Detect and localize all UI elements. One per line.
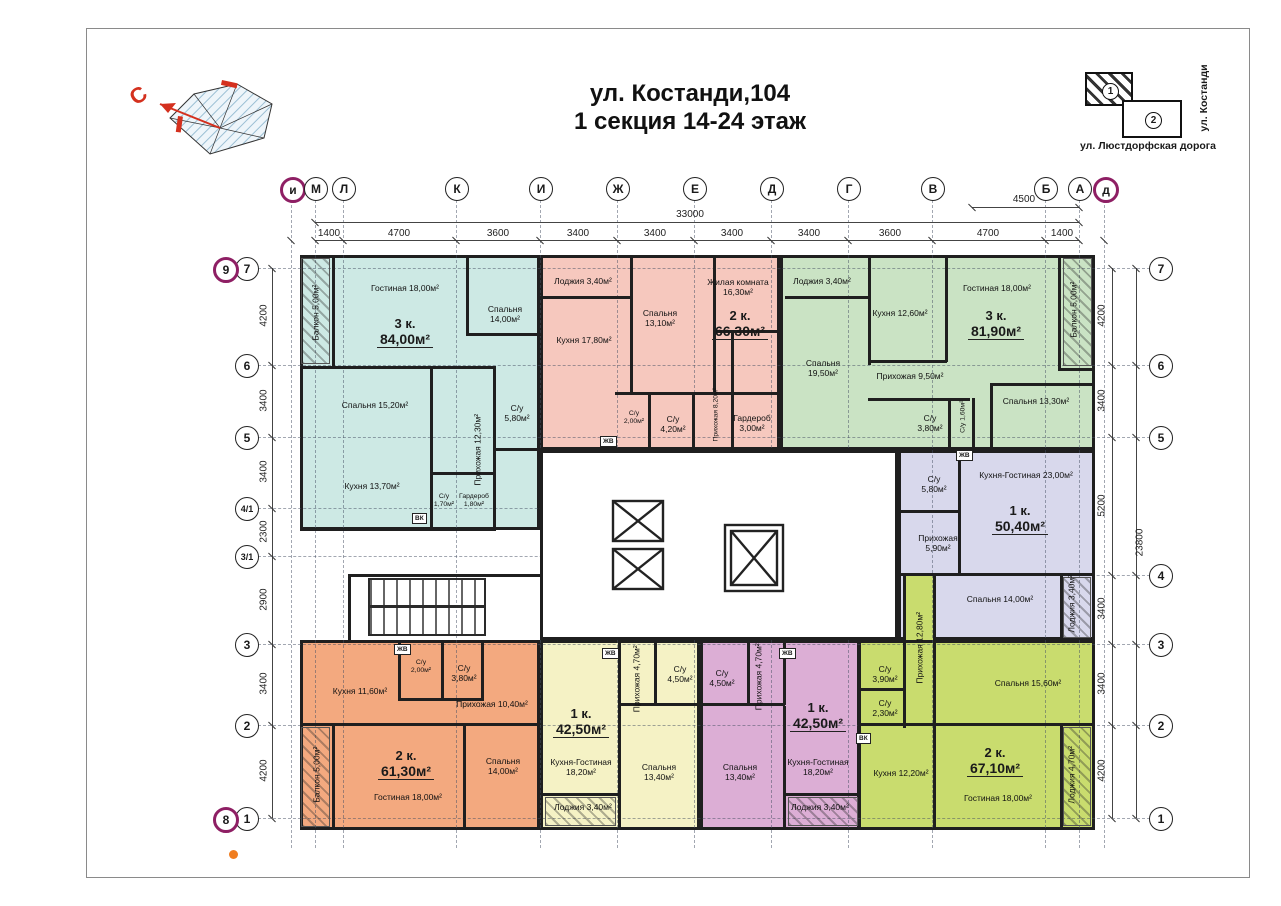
room-label: Спальня 15,20м² [338, 401, 412, 411]
staircase-landing [368, 605, 486, 608]
floor-plan-sheet: ул. Костанди,104 1 секция 14-24 этаж С 1… [0, 0, 1281, 906]
shaft-label: ЖВ [600, 436, 617, 447]
shaft-label: ЖВ [394, 644, 411, 655]
axis-label-и: и [280, 177, 306, 203]
shaft-label: ЖВ [956, 450, 973, 461]
room-label: Гардероб 3,00м² [724, 414, 780, 433]
room-label: С/у 1,60м² [959, 380, 967, 454]
wall [1060, 725, 1063, 830]
apartment-type-label: 3 к. [941, 308, 1051, 323]
room-label: Балкон 5,00м² [312, 738, 322, 812]
apartment-area-label: 81,90м² [968, 323, 1024, 340]
room-label: Лоджия 3,40м² [783, 803, 857, 813]
axis-label-3/1: 3/1 [235, 545, 259, 569]
apartment-area-label: 42,50м² [790, 715, 846, 732]
room-label: Кухня-Гостиная 18,20м² [775, 758, 861, 777]
dimension-label: 4700 [377, 228, 421, 239]
wall [493, 450, 496, 530]
room-label: Прихожая 5,90м² [908, 534, 968, 553]
axis-label-К: К [445, 177, 469, 201]
wall [933, 640, 936, 830]
room-label: Гостиная 18,00м² [960, 284, 1034, 294]
wall [466, 255, 469, 335]
gridline-horizontal [258, 508, 588, 509]
room-label: Кухня-Гостиная 18,20м² [538, 758, 624, 777]
dimension-label: 3400 [710, 228, 754, 239]
axis-label-2: 2 [1149, 714, 1173, 738]
room-label: Жилая комната 16,30м² [694, 278, 782, 297]
room-label: Спальня 13,40м² [709, 763, 771, 782]
apartment-type-label: 2 к. [351, 748, 461, 763]
apartment-area-label: 66,30м² [712, 323, 768, 340]
wall [1058, 368, 1095, 371]
wall [858, 688, 905, 691]
dimension-line [972, 207, 1079, 208]
dimension-label: 3400 [1097, 664, 1108, 704]
apartment-type-label: 3 к. [350, 316, 460, 331]
wall [543, 793, 620, 796]
room-label: Лоджия 3,40м² [546, 277, 620, 287]
shaft-label: ВК [856, 733, 871, 744]
room-label: Спальня 19,50м² [794, 359, 852, 378]
dimension-label: 4700 [966, 228, 1010, 239]
wall [990, 383, 1095, 386]
apartment-type-label: 1 к. [763, 700, 873, 715]
elevator-shafts-icon [543, 453, 895, 637]
dimension-label: 3400 [259, 664, 270, 704]
axis-label-В: В [921, 177, 945, 201]
apartment-area-label: 61,30м² [378, 763, 434, 780]
apartment-type-label: 1 к. [526, 706, 636, 721]
dimension-label: 1400 [1040, 228, 1084, 239]
room-label: Кухня 12,60м² [871, 309, 929, 319]
shaft-label: ЖВ [779, 648, 796, 659]
wall [868, 398, 970, 401]
apartment-area-label: 67,10м² [967, 760, 1023, 777]
room-label: С/у 3,90м² [867, 665, 903, 684]
wall [868, 360, 947, 363]
dimension-label: 3400 [259, 452, 270, 492]
room-label: Лоджия 3,40м² [1067, 567, 1077, 641]
dimension-label: 3400 [787, 228, 831, 239]
apartment-type-label: 2 к. [940, 745, 1050, 760]
axis-label-И: И [529, 177, 553, 201]
dimension-label: 2900 [259, 580, 270, 620]
axis-label-д: д [1093, 177, 1119, 203]
dimension-label-total: 23800 [1135, 518, 1146, 568]
wall [933, 723, 1095, 726]
apartment-label: 3 к.81,90м² [941, 308, 1051, 341]
room-label: Прихожая 4,70м² [632, 642, 642, 716]
axis-label-3: 3 [1149, 633, 1173, 657]
axis-label-4/1: 4/1 [235, 497, 259, 521]
room-label: С/у 2,00м² [406, 659, 436, 674]
dimension-label: 4200 [259, 296, 270, 336]
room-label: Прихожая 8,20м² [712, 378, 720, 452]
shaft-label: ЖВ [602, 648, 619, 659]
axis-label-3: 3 [235, 633, 259, 657]
axis-label-Г: Г [837, 177, 861, 201]
gridline-horizontal [258, 268, 1150, 269]
dimension-label: 4200 [1097, 751, 1108, 791]
dimension-label: 5200 [1097, 486, 1108, 526]
gridline-vertical [291, 200, 292, 848]
axis-label-4: 4 [1149, 564, 1173, 588]
gridline-horizontal [258, 818, 1150, 819]
room-label: Спальня 13,30м² [998, 397, 1074, 407]
axis-label-Б: Б [1034, 177, 1058, 201]
wall [300, 723, 540, 726]
dimension-label: 2300 [259, 512, 270, 552]
wall [933, 573, 966, 576]
apartment-label: 2 к.67,10м² [940, 745, 1050, 778]
apartment-label: 1 к.50,40м² [965, 503, 1075, 536]
room-label: Спальня 13,10м² [631, 309, 689, 328]
wall [466, 333, 542, 336]
axis-label-2: 2 [235, 714, 259, 738]
room-label: Лоджия 4,70м² [1067, 738, 1077, 812]
room-label: С/у 3,80м² [912, 414, 948, 433]
dimension-label: 3600 [868, 228, 912, 239]
axis-label-Д: Д [760, 177, 784, 201]
apartment-area-label: 50,40м² [992, 518, 1048, 535]
wall [972, 398, 975, 450]
axis-label-8: 8 [213, 807, 239, 833]
room-label: Спальня 13,40м² [628, 763, 690, 782]
gridline-vertical [343, 200, 344, 848]
axis-label-5: 5 [235, 426, 259, 450]
dimension-label: 3400 [1097, 381, 1108, 421]
elevator-core [540, 450, 898, 640]
room-label: С/у 5,80м² [914, 475, 954, 494]
room-label: Кухня 12,20м² [869, 769, 933, 779]
site-map-building-2: 2 [1122, 100, 1182, 138]
axis-label-5: 5 [1149, 426, 1173, 450]
dimension-label: 4200 [1097, 296, 1108, 336]
gridline-horizontal [258, 644, 1150, 645]
room-label: Спальня 14,00м² [472, 757, 534, 776]
dimension-label: 3400 [556, 228, 600, 239]
dimension-line [272, 268, 273, 818]
axis-label-6: 6 [235, 354, 259, 378]
room-label: Кухня 17,80м² [555, 336, 613, 346]
apartment-area-label: 42,50м² [553, 721, 609, 738]
axis-label-М: М [304, 177, 328, 201]
wall [615, 392, 780, 395]
room-label: Гостиная 18,00м² [953, 794, 1043, 804]
axis-label-А: А [1068, 177, 1092, 201]
apartment-label: 1 к.42,50м² [763, 700, 873, 733]
axis-label-9: 9 [213, 257, 239, 283]
wall [332, 723, 335, 830]
wall [654, 643, 657, 705]
wall [493, 448, 540, 451]
axis-label-6: 6 [1149, 354, 1173, 378]
apartment-label: 1 к.42,50м² [526, 706, 636, 739]
room-label: Лоджия 3,40м² [785, 277, 859, 287]
axis-label-Л: Л [332, 177, 356, 201]
wall [898, 510, 960, 513]
dimension-line [1112, 268, 1113, 818]
wall [463, 726, 466, 830]
room-label: Спальня 14,00м² [955, 595, 1045, 605]
apartment-type-label: 1 к. [965, 503, 1075, 518]
dimension-label: 3400 [633, 228, 677, 239]
room-label: Прихожая 10,40м² [450, 700, 534, 710]
room-label: С/у 4,50м² [702, 669, 742, 688]
dimension-label: 3400 [1097, 589, 1108, 629]
room-label: Гостиная 18,00м² [368, 284, 442, 294]
room-label: Спальня 15,60м² [983, 679, 1073, 689]
apartment-label: 2 к.66,30м² [685, 308, 795, 341]
gridline-horizontal [258, 556, 588, 557]
room-label: Кухня 13,70м² [335, 482, 409, 492]
wall [903, 573, 906, 728]
room-label: Гостиная 18,00м² [363, 793, 453, 803]
wall [300, 366, 496, 369]
dimension-label: 3600 [476, 228, 520, 239]
room-label: С/у 2,00м² [619, 410, 649, 425]
wall [433, 472, 493, 475]
room-label: Кухня 11,60м² [320, 687, 400, 697]
dimension-label: 4200 [259, 751, 270, 791]
axis-label-Ж: Ж [606, 177, 630, 201]
room-label: Прихожая 12,30м² [473, 413, 483, 487]
wall [348, 574, 351, 642]
wall [948, 398, 951, 450]
wall [350, 574, 542, 577]
dimension-label-total: 33000 [665, 209, 715, 220]
axis-label-Е: Е [683, 177, 707, 201]
apartment-area-label: 84,00м² [377, 331, 433, 348]
room-label: С/у 4,50м² [660, 665, 700, 684]
wall [1060, 575, 1063, 640]
wall [332, 255, 335, 368]
room-label: Кухня-Гостиная 23,00м² [961, 471, 1091, 481]
room-label: Лоджия 3,40м² [546, 803, 620, 813]
apartment-type-label: 2 к. [685, 308, 795, 323]
room-label: С/у 4,20м² [653, 415, 693, 434]
wall [747, 643, 750, 705]
dimension-label: 3400 [259, 381, 270, 421]
wall [1058, 255, 1061, 371]
axis-label-1: 1 [1149, 807, 1173, 831]
building-1-number: 1 [1102, 83, 1119, 100]
dimension-line [315, 222, 1079, 223]
room-label: Прихожая 12,80м² [915, 611, 925, 685]
dimension-line [315, 240, 1079, 241]
wall [300, 528, 496, 531]
apartment-label: 2 к.61,30м² [351, 748, 461, 781]
apartment-label: 3 к.84,00м² [350, 316, 460, 349]
dimension-label: 1400 [307, 228, 351, 239]
wall [441, 643, 444, 701]
wall [493, 366, 496, 450]
wall [785, 296, 871, 299]
axis-label-7: 7 [1149, 257, 1173, 281]
room-label: Балкон 5,00м² [311, 276, 321, 350]
gridline-horizontal [258, 437, 1150, 438]
wall [540, 296, 632, 299]
room-label: С/у 5,80м² [497, 404, 537, 423]
room-label: Прихожая 9,50м² [860, 372, 960, 382]
room-label: Спальня 14,00м² [476, 305, 534, 324]
wall [786, 793, 860, 796]
room-label: Балкон 5,00м² [1069, 273, 1079, 347]
wall [990, 383, 993, 450]
shaft-label: ВК [412, 513, 427, 524]
building-2-number: 2 [1145, 112, 1162, 129]
room-label: С/у 3,80м² [446, 664, 482, 683]
room-label: Гардероб 1,80м² [455, 493, 493, 508]
